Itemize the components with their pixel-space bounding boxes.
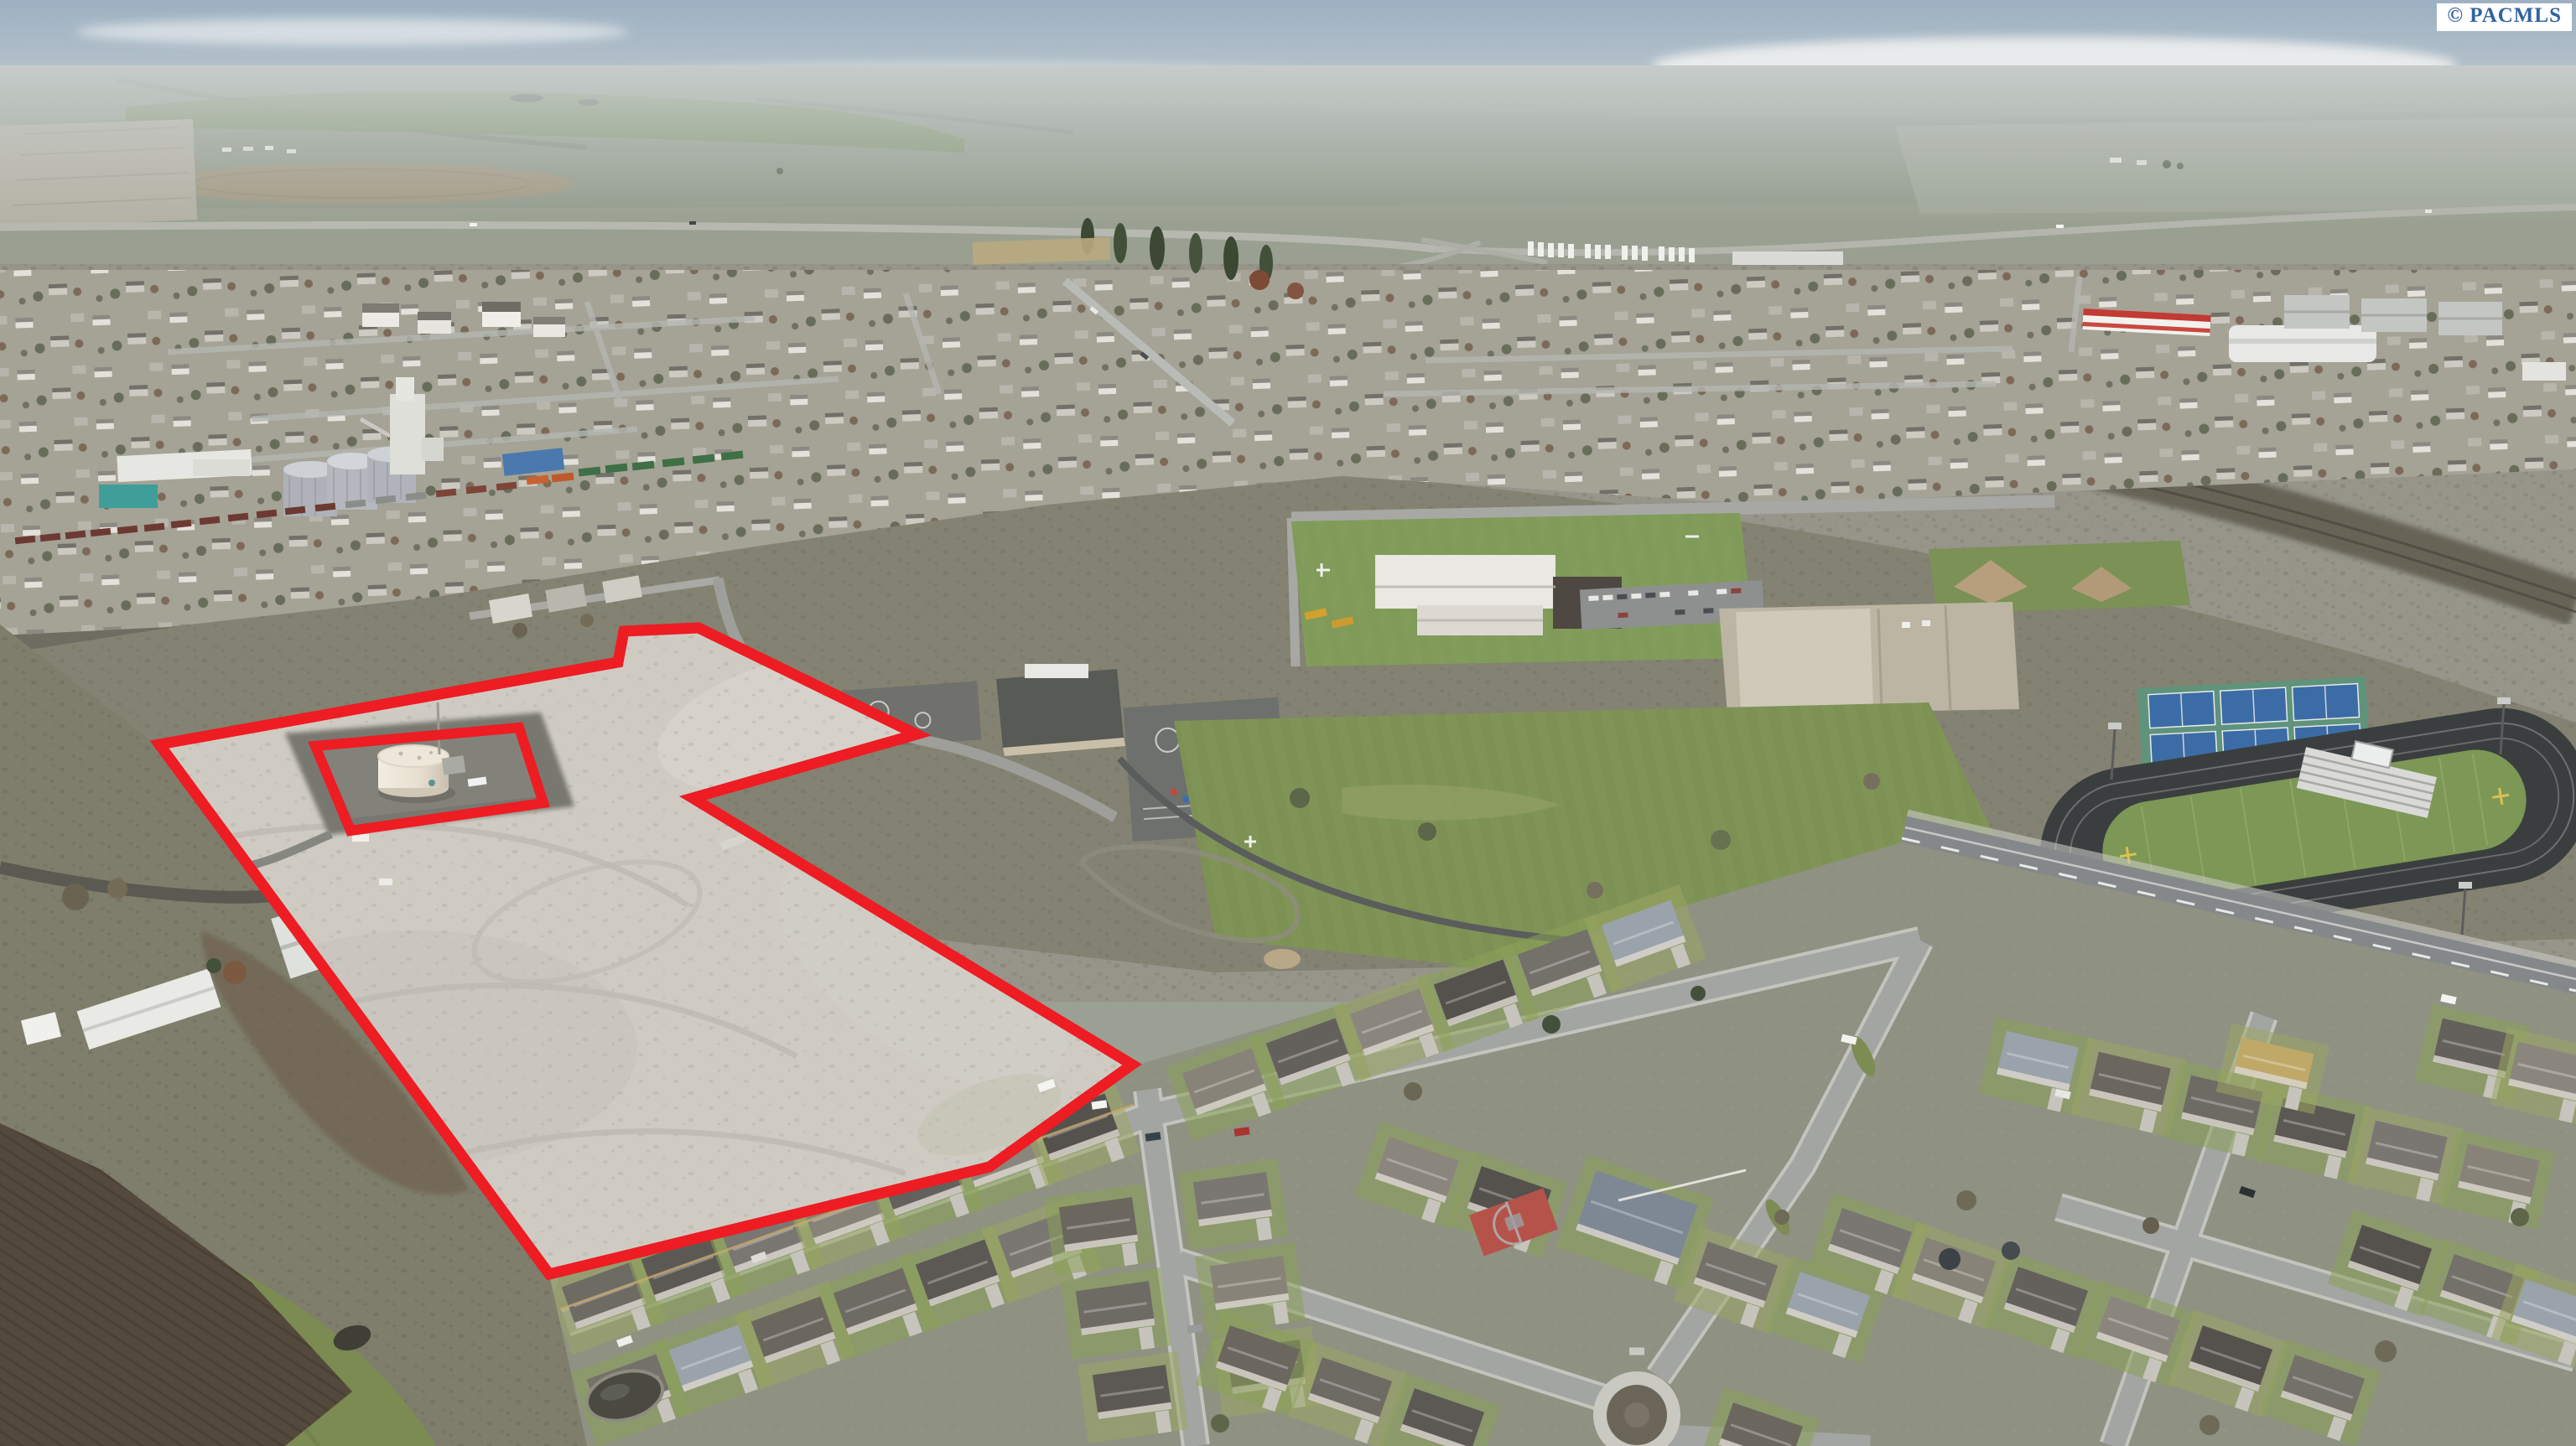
tree: [2375, 1340, 2397, 1362]
tree: [1542, 1015, 1561, 1034]
tree: [1211, 1414, 1229, 1433]
car: [1629, 1348, 1644, 1355]
house: [1061, 1267, 1171, 1360]
house: [1078, 1351, 1188, 1443]
tree: [2142, 1217, 2159, 1234]
gym-building: [1719, 602, 2019, 714]
scene: [0, 0, 2576, 1446]
tree: [2511, 1208, 2529, 1226]
tree: [2199, 1415, 2220, 1435]
trampoline: [1939, 1248, 1961, 1270]
aerial-photo: © PACMLS: [0, 0, 2576, 1446]
teal-bins: [99, 485, 158, 508]
house: [1044, 1184, 1155, 1276]
elevator-tower: [390, 394, 425, 474]
tree: [1774, 1210, 1789, 1225]
tree: [1404, 1082, 1422, 1101]
pacmls-watermark: © PACMLS: [2437, 3, 2572, 31]
tree: [1956, 1190, 1976, 1210]
arena-field: [973, 237, 1111, 265]
tree: [1690, 986, 1706, 1001]
house: [1178, 1158, 1289, 1251]
